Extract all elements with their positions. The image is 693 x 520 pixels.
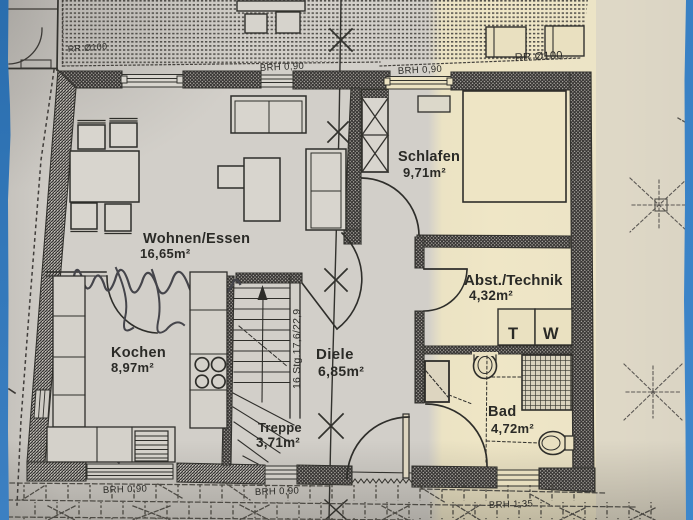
svg-text:Diele: Diele [316, 346, 354, 363]
svg-text:T: T [508, 325, 518, 343]
svg-text:3,71m²: 3,71m² [256, 435, 300, 450]
svg-text:Wohnen/Essen: Wohnen/Essen [143, 231, 250, 247]
svg-text:Abst./Technik: Abst./Technik [464, 272, 563, 289]
svg-text:4,72m²: 4,72m² [491, 421, 534, 436]
svg-text:Schlafen: Schlafen [398, 149, 460, 165]
svg-text:16,65m²: 16,65m² [140, 246, 191, 261]
svg-text:W: W [543, 325, 559, 343]
svg-text:BRH 0,90: BRH 0,90 [255, 485, 300, 498]
svg-text:BRH 1,35: BRH 1,35 [489, 498, 534, 511]
svg-text:Treppe: Treppe [258, 420, 302, 435]
svg-text:6,85m²: 6,85m² [318, 363, 364, 379]
svg-text:9,71m²: 9,71m² [403, 165, 446, 180]
svg-text:BRH 0,90: BRH 0,90 [398, 64, 443, 77]
svg-text:8,97m²: 8,97m² [111, 360, 154, 375]
svg-text:RR Ø100: RR Ø100 [515, 50, 564, 64]
svg-text:Kochen: Kochen [111, 345, 166, 361]
svg-text:4,32m²: 4,32m² [469, 288, 513, 303]
svg-text:Bad: Bad [488, 404, 517, 420]
svg-text:BRH 0,90: BRH 0,90 [103, 483, 148, 496]
svg-text:16 Stg.17,6/22,9: 16 Stg.17,6/22,9 [291, 309, 303, 389]
